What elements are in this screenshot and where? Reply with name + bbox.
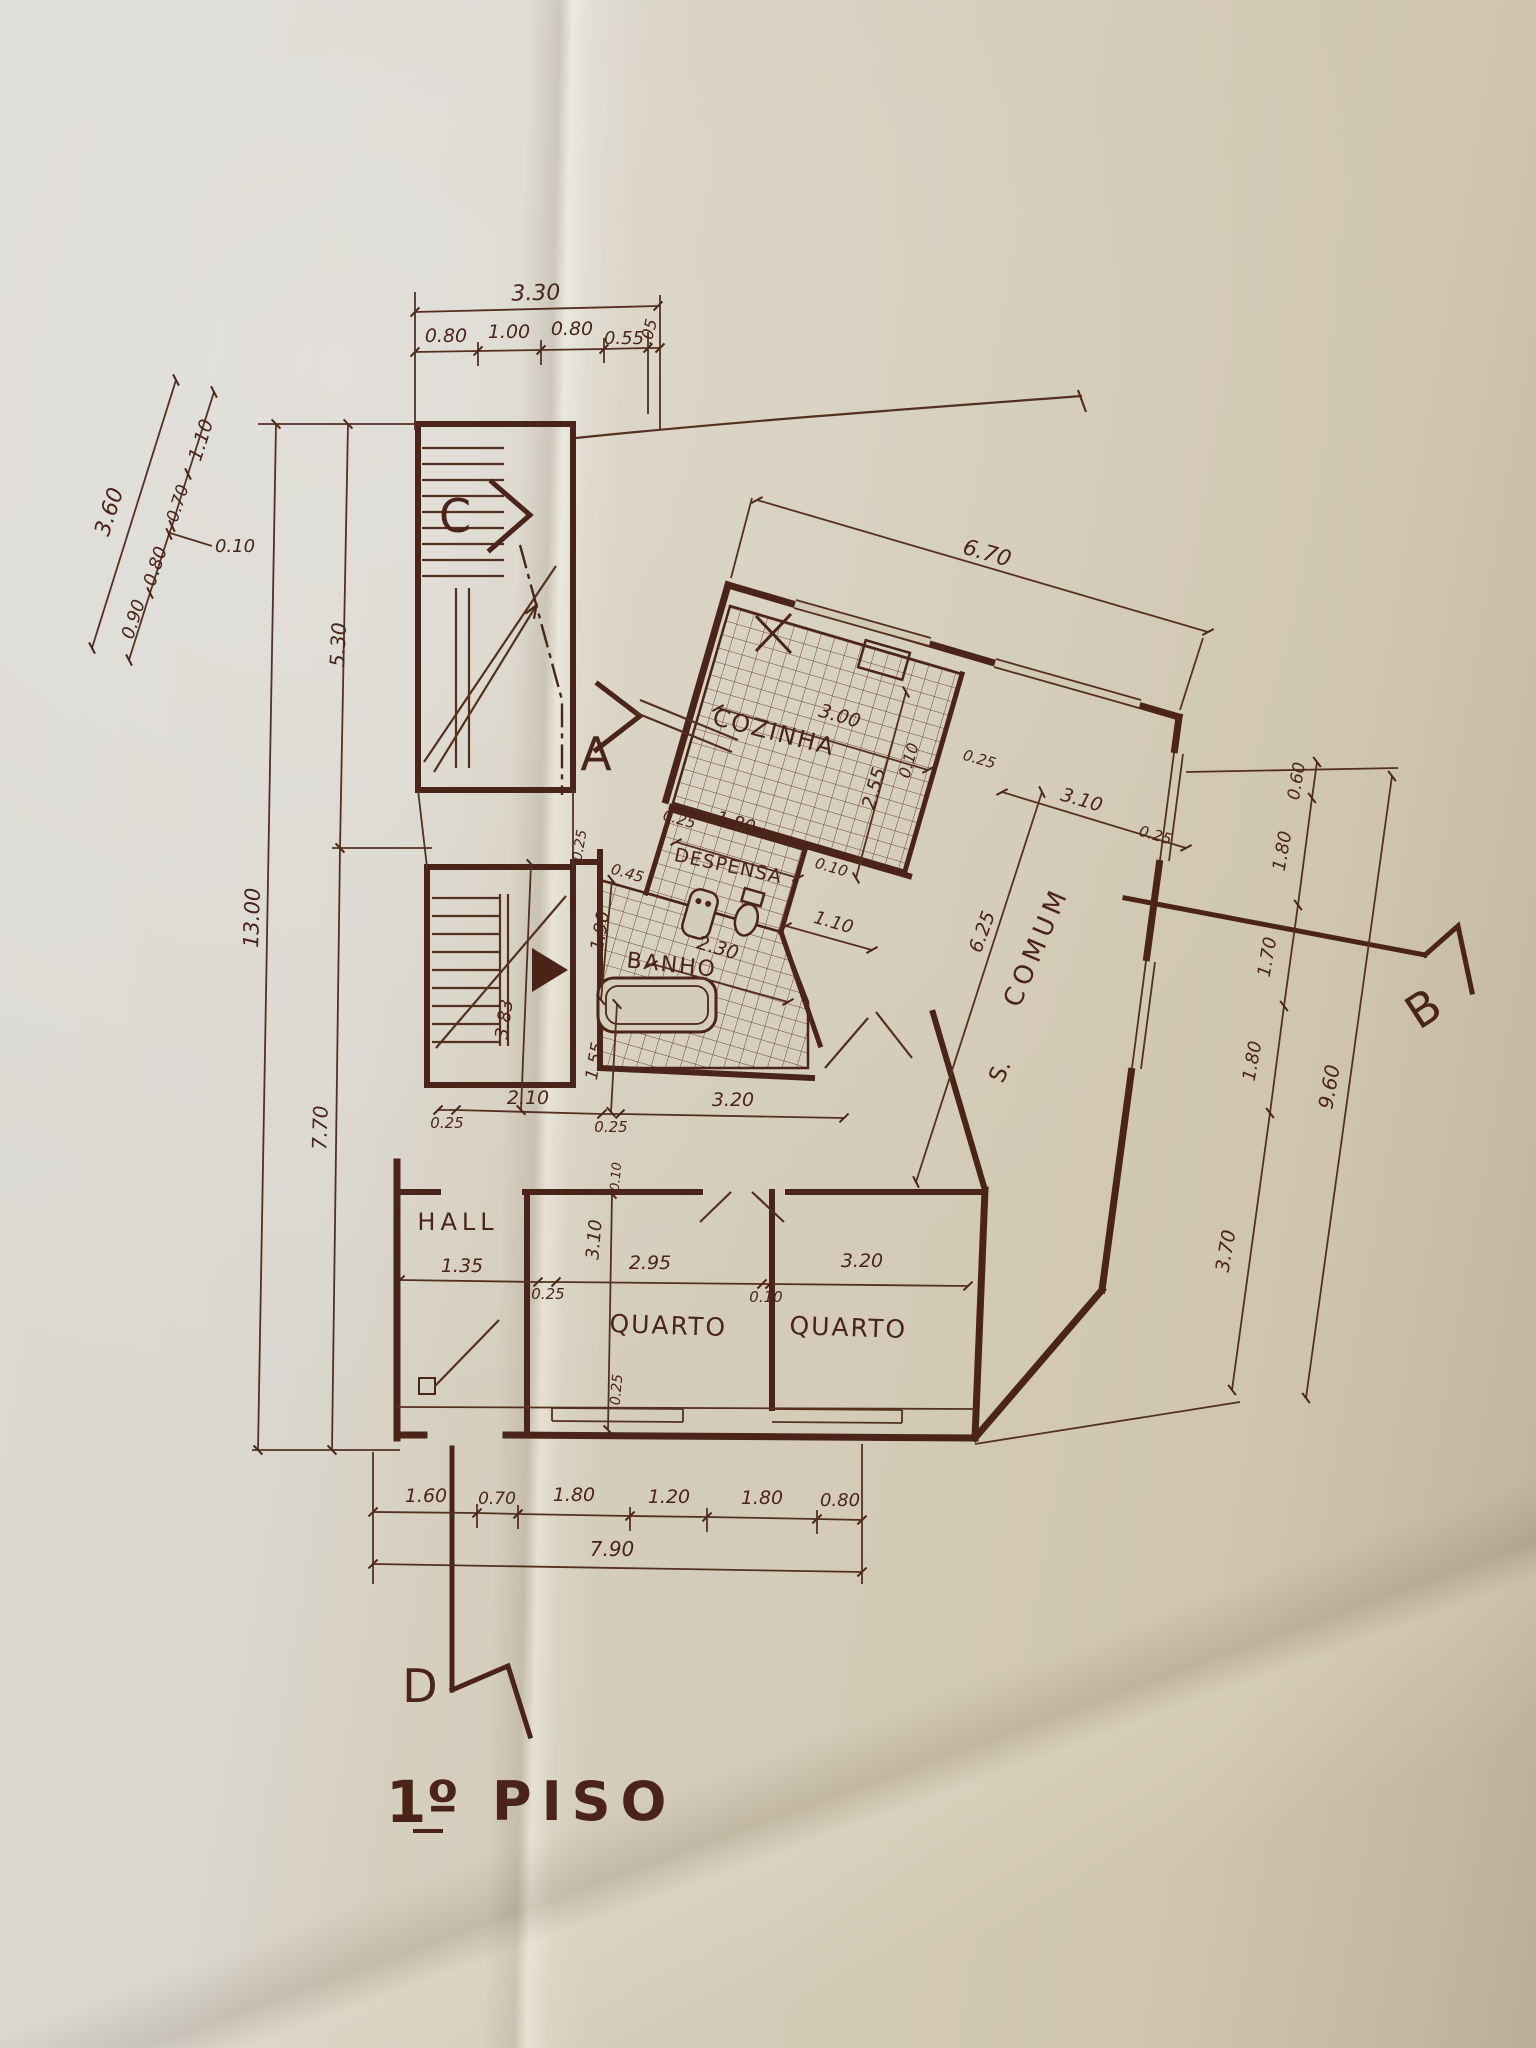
dim-bed-sill: 0.25	[608, 1373, 627, 1406]
dim-left-lower: 7.70	[307, 1105, 333, 1150]
dim-bed-4: 3.20	[841, 1250, 883, 1272]
dim-bot-3: 1.20	[648, 1486, 690, 1508]
section-letter-c: C	[439, 489, 471, 543]
title-floor-word: PISO	[492, 1770, 676, 1833]
dim-top-4: .05	[636, 317, 661, 347]
dim-right-3: 1.80	[1239, 1039, 1267, 1082]
dim-leftdiag-0: 1.10	[184, 417, 218, 464]
dim-leftdiag-2: 0.10	[215, 536, 255, 557]
dim-living-length: 6.25	[965, 908, 1000, 955]
dim-pantry-pass: 1.10	[811, 907, 855, 938]
dim-top-1: 1.00	[488, 321, 530, 343]
drawing-title: 1º PISO	[386, 1768, 676, 1836]
dim-top-0: 0.80	[425, 325, 467, 347]
dim-right-0: 0.60	[1284, 761, 1310, 802]
dim-top-2: 0.80	[551, 318, 593, 340]
dim-corr-2: 0.25	[594, 1118, 627, 1136]
dim-right-1: 1.80	[1269, 829, 1297, 872]
title-floor-number: 1º	[386, 1768, 459, 1836]
dim-bot-5: 0.80	[820, 1490, 860, 1511]
section-letter-b: B	[1395, 977, 1451, 1039]
dim-bed-0: 1.35	[441, 1255, 483, 1277]
dim-bottom-total: 7.90	[590, 1537, 635, 1561]
stair-direction-arrow	[434, 606, 536, 772]
dim-window-pier: 0.25	[961, 746, 998, 773]
room-label-living: COMUM	[998, 882, 1075, 1011]
site-boundary	[576, 390, 1086, 438]
dim-bot-2: 1.80	[553, 1484, 595, 1506]
dim-leftdiag-4: 0.90	[118, 597, 150, 642]
section-letter-a: A	[580, 727, 612, 781]
dim-leftdiag-3: 0.80	[140, 544, 172, 589]
dim-right-2: 1.70	[1254, 935, 1282, 978]
room-label-living-prefix: S.	[984, 1056, 1016, 1086]
section-marker-b: B	[1125, 898, 1472, 1040]
dim-corr-3: 3.20	[712, 1089, 754, 1111]
dim-bot-4: 1.80	[741, 1487, 783, 1509]
dim-leftdiag-1: 0.70	[163, 482, 194, 524]
dim-corr-1: 2.10	[507, 1087, 549, 1109]
dim-bed-1: 0.25	[531, 1285, 564, 1303]
dim-bed-head: 0.10	[608, 1162, 625, 1192]
stair-pointer-triangle	[532, 948, 568, 992]
dim-bed-2: 2.95	[629, 1252, 671, 1274]
dim-stair-width: 1.55	[582, 1041, 608, 1082]
floor-plan-drawing: C A B D	[0, 0, 1536, 2048]
dim-right-lower: 3.70	[1212, 1228, 1241, 1273]
dim-bot-1: 0.70	[478, 1489, 516, 1509]
blueprint-photo: C A B D	[0, 0, 1536, 2048]
dim-shaft-width: 0.45	[609, 860, 646, 887]
dim-left-upper: 5.30	[325, 622, 351, 668]
dim-bed-3: 0.10	[749, 1288, 782, 1306]
dim-leftdiag-total: 3.60	[90, 485, 129, 539]
room-label-bedroom-left: QUARTO	[609, 1309, 728, 1342]
dim-bot-0: 1.60	[405, 1485, 447, 1507]
dim-top-total: 3.30	[511, 280, 561, 306]
dim-right-total: 9.60	[1313, 1063, 1344, 1111]
dim-stair-run: 3.83	[491, 998, 517, 1041]
room-label-hall: HALL	[417, 1208, 498, 1236]
dim-corr-0: 0.25	[430, 1114, 463, 1132]
section-letter-d: D	[402, 1659, 437, 1713]
walls	[397, 424, 1179, 1438]
room-label-bedroom-right: QUARTO	[789, 1311, 908, 1344]
dim-bed-depth: 3.10	[582, 1219, 606, 1261]
dim-left-total: 13.00	[239, 887, 265, 948]
